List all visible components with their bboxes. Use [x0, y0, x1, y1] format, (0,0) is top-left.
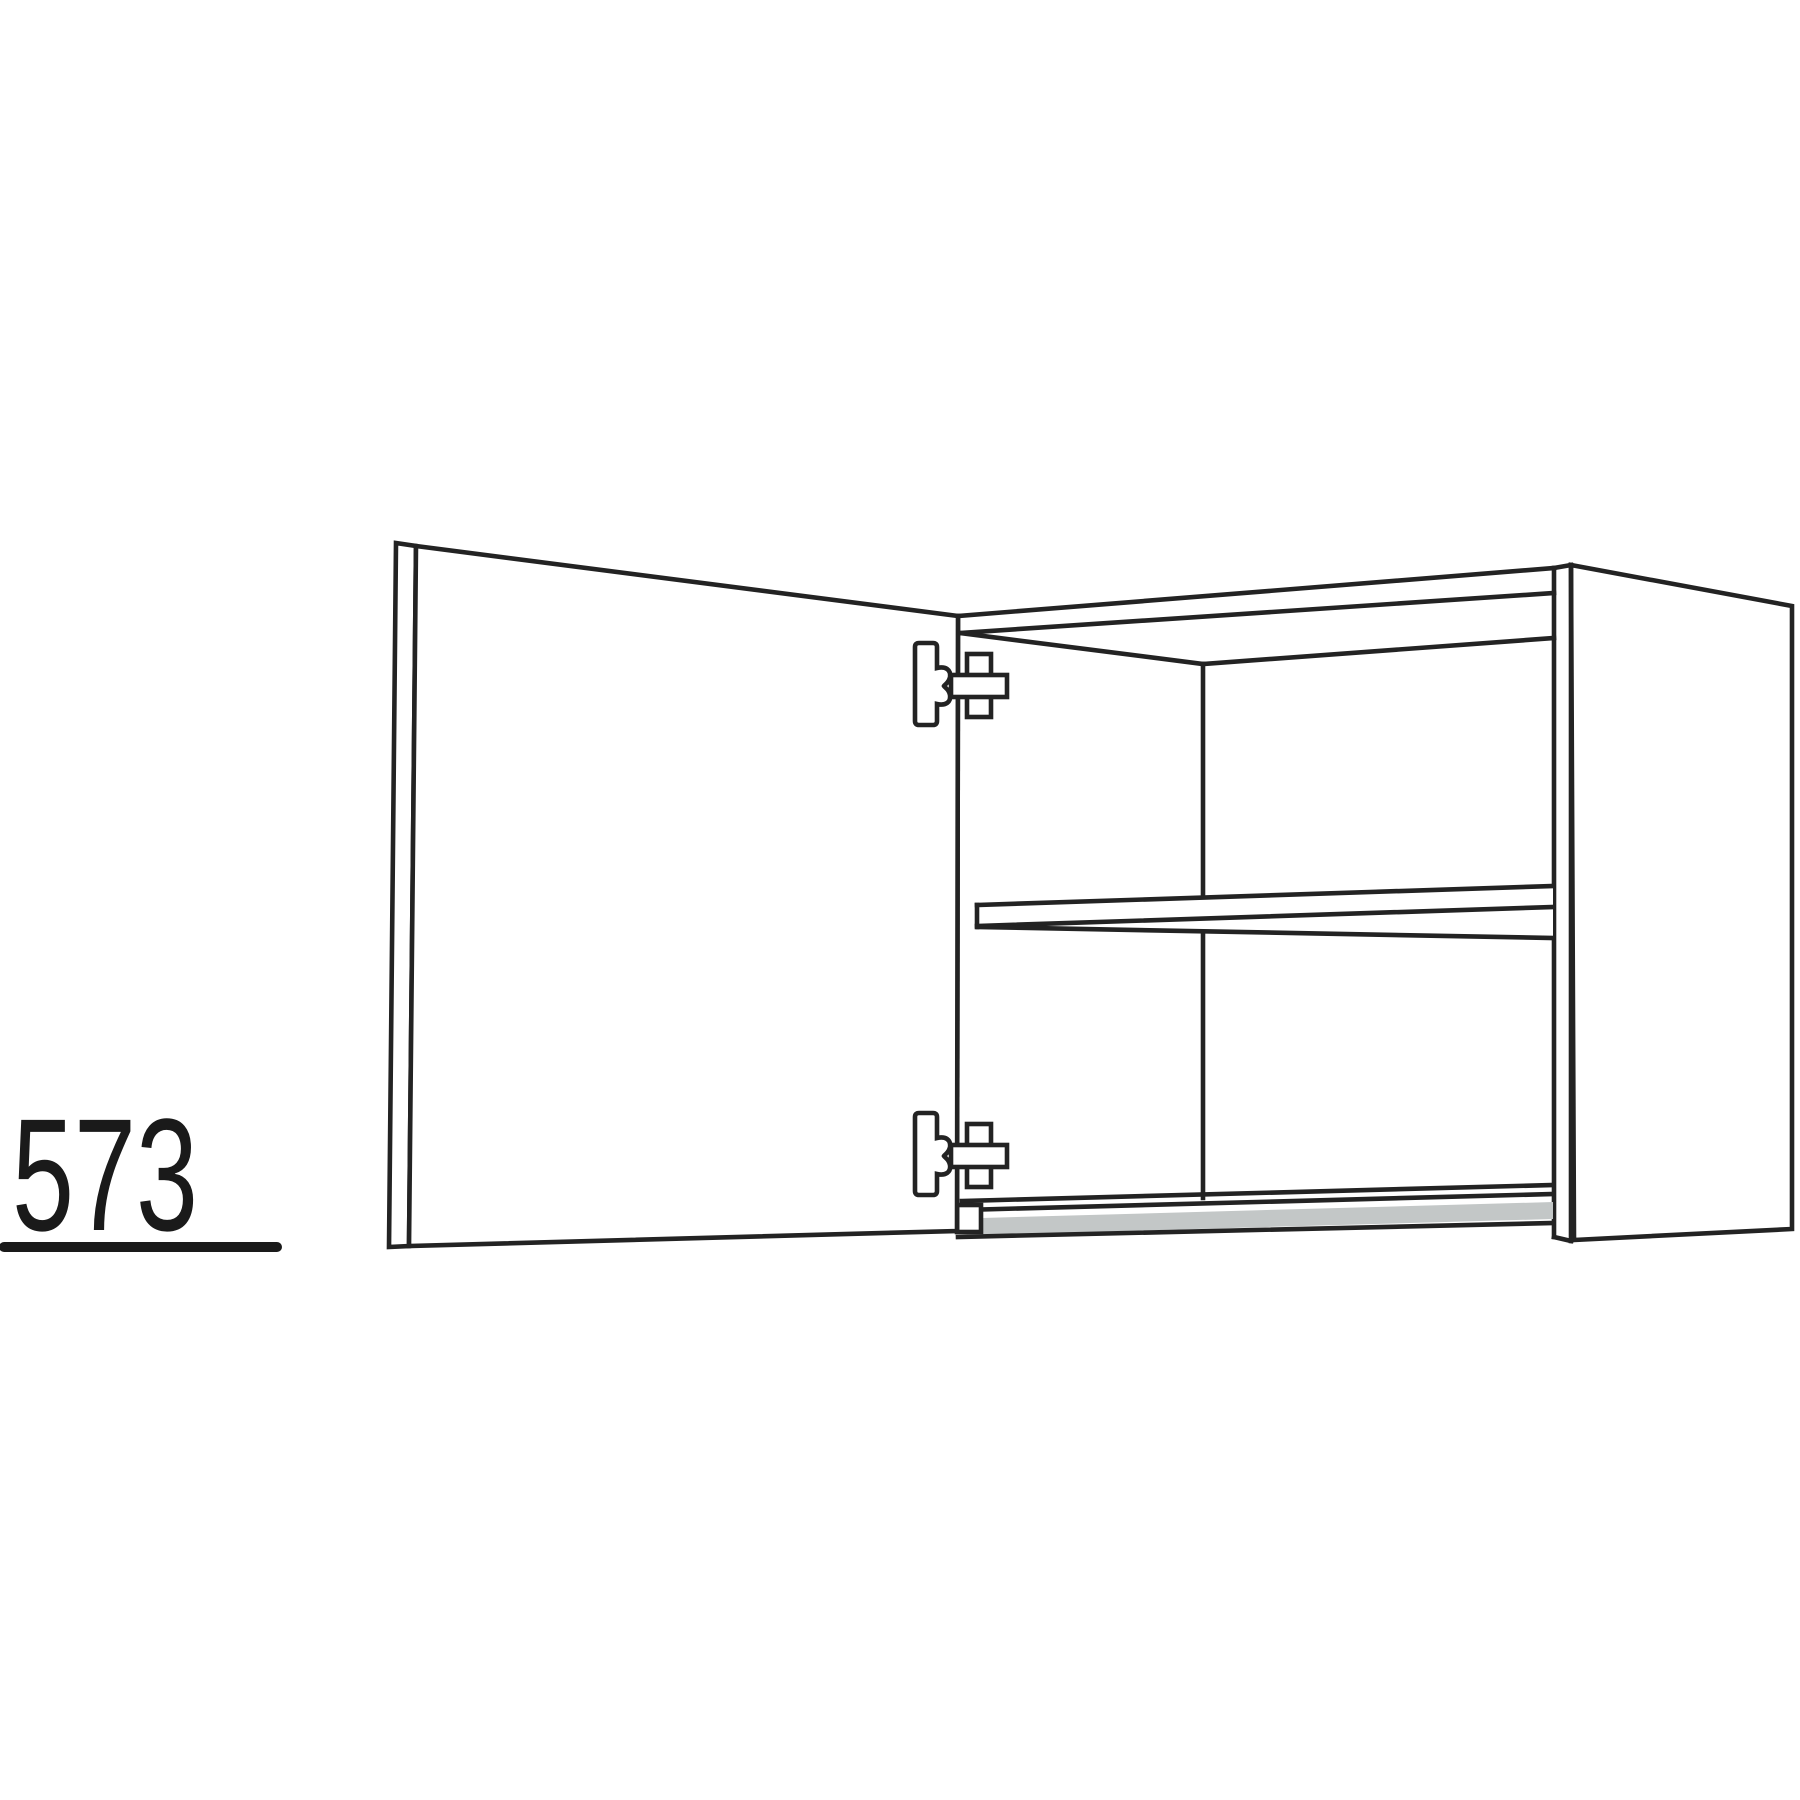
front-right-edge: [1554, 565, 1571, 1241]
dimension-annotation: 573: [4, 1085, 277, 1264]
right-side-panel: [1571, 565, 1792, 1240]
wall-cabinet-line-drawing: 573: [0, 0, 1800, 1800]
cabinet-carcass: [957, 565, 1792, 1241]
door-panel: [409, 546, 958, 1246]
cabinet-diagram-canvas: 573: [0, 0, 1800, 1800]
bottom-hinge: [915, 1113, 1007, 1195]
dimension-label: 573: [12, 1085, 198, 1264]
cabinet-door: [389, 543, 958, 1247]
top-panel-edges: [958, 568, 1554, 633]
top-hinge: [915, 643, 1007, 725]
shelf: [977, 886, 1553, 938]
bottom-corner-block: [957, 1205, 981, 1232]
bottom-panel: [957, 1185, 1553, 1237]
